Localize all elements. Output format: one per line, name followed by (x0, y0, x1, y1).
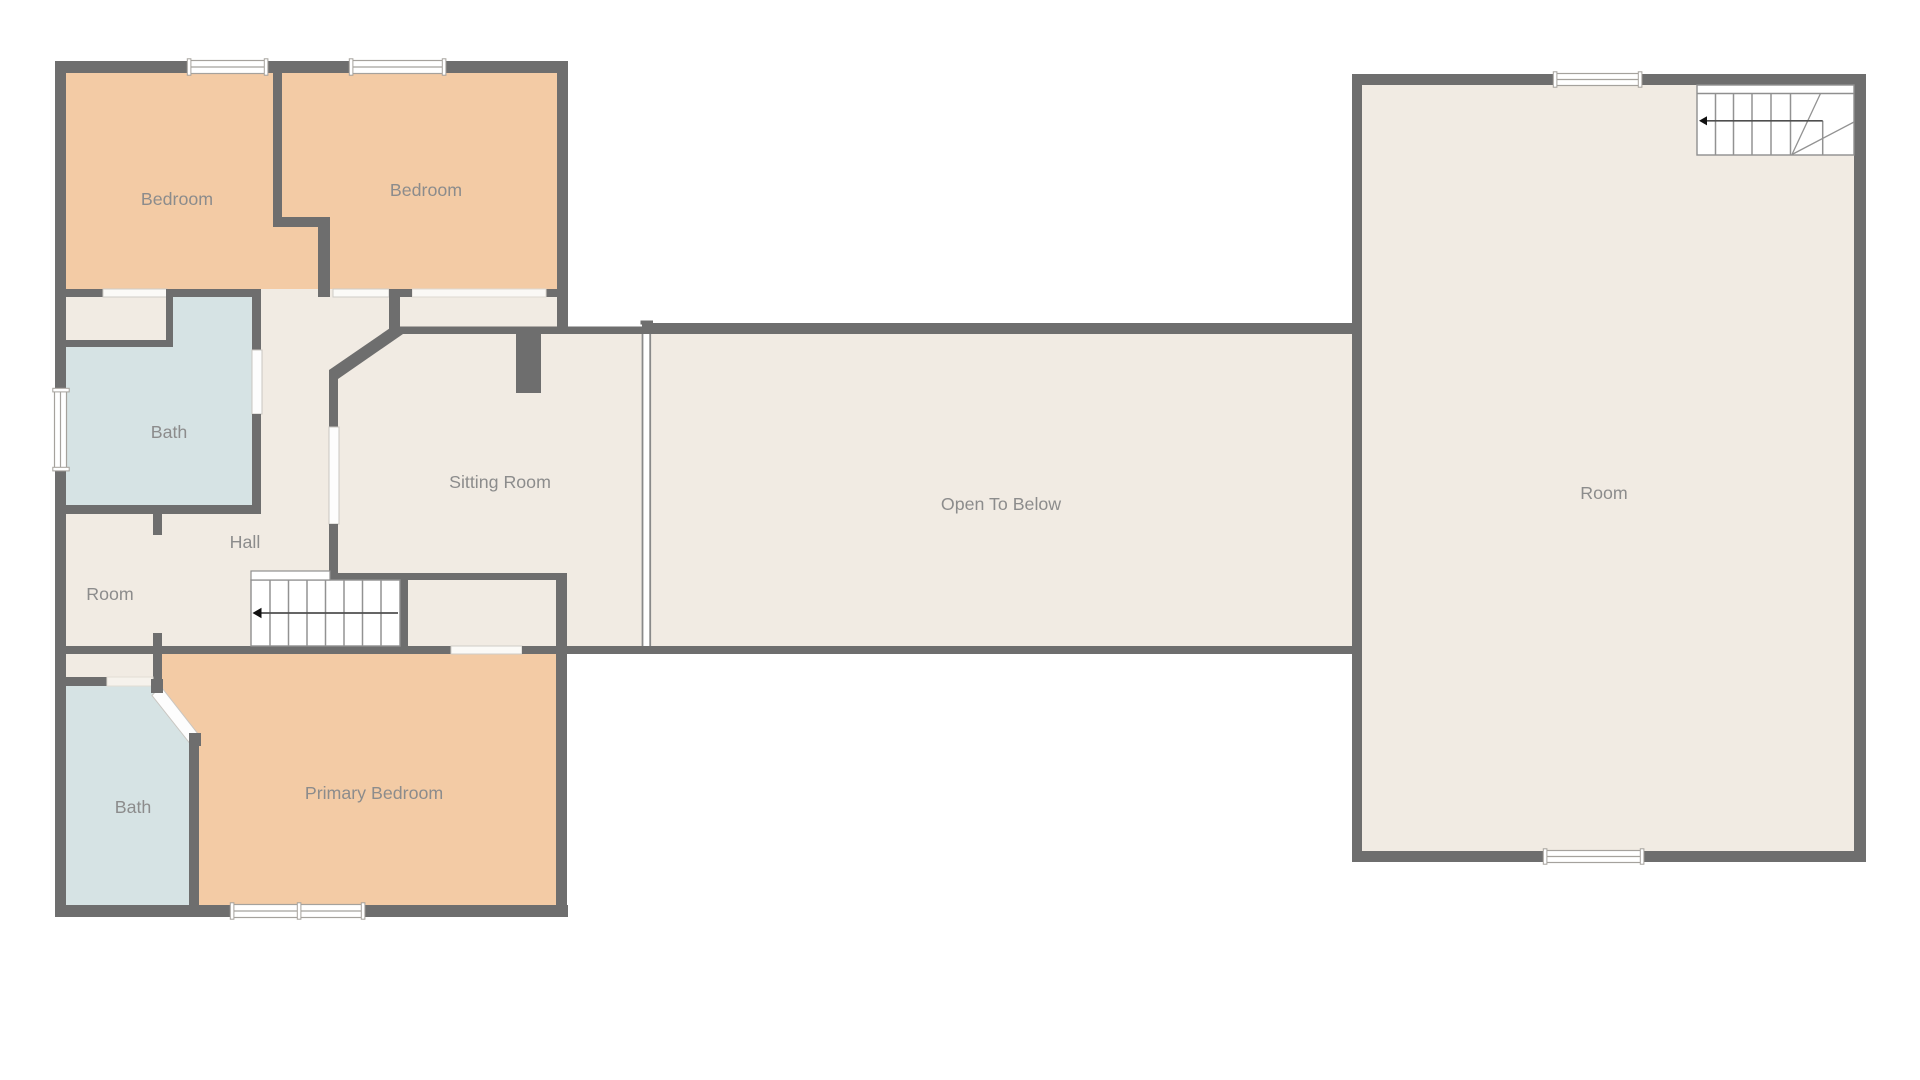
svg-text:Bedroom: Bedroom (390, 180, 462, 200)
svg-text:Sitting Room: Sitting Room (449, 472, 551, 492)
svg-text:Room: Room (1580, 483, 1627, 503)
svg-text:Bath: Bath (115, 797, 152, 817)
svg-text:Primary Bedroom: Primary Bedroom (305, 783, 443, 803)
svg-text:Bath: Bath (151, 422, 188, 442)
svg-text:Room: Room (86, 584, 133, 604)
svg-text:Hall: Hall (230, 532, 261, 552)
svg-text:Open To Below: Open To Below (941, 494, 1061, 514)
svg-text:Bedroom: Bedroom (141, 189, 213, 209)
